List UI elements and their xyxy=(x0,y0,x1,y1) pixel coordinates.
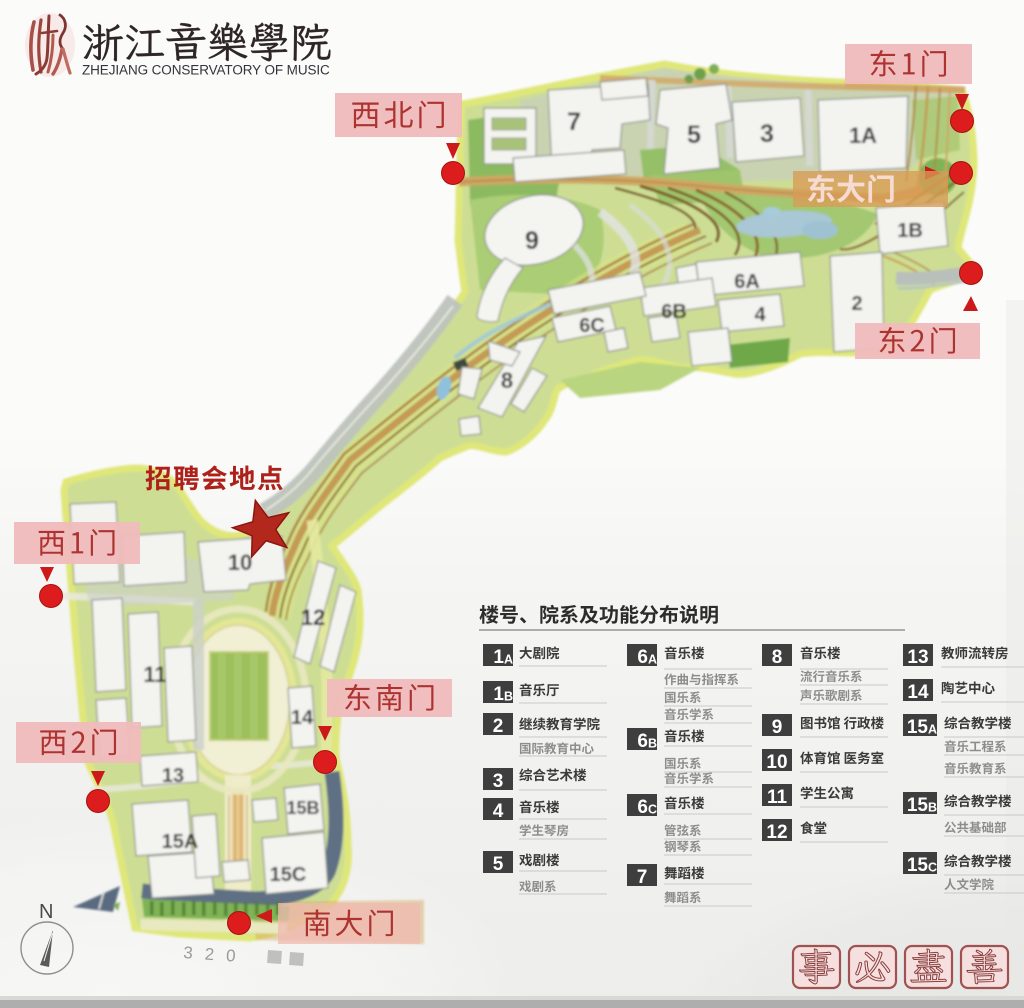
svg-text:A: A xyxy=(648,653,657,667)
svg-text:C: C xyxy=(648,803,657,817)
svg-text:B: B xyxy=(648,737,657,751)
svg-text:B: B xyxy=(504,690,513,704)
svg-text:3: 3 xyxy=(760,120,774,148)
svg-text:ZHEJIANG CONSERVATORY OF MUSIC: ZHEJIANG CONSERVATORY OF MUSIC xyxy=(82,63,330,78)
svg-text:15: 15 xyxy=(907,855,929,876)
svg-text:15A: 15A xyxy=(162,831,199,853)
svg-text:1A: 1A xyxy=(849,123,877,148)
svg-text:8: 8 xyxy=(772,647,783,668)
svg-text:1: 1 xyxy=(493,684,504,705)
svg-text:C: C xyxy=(928,861,937,875)
svg-text:15: 15 xyxy=(907,795,929,816)
svg-text:7: 7 xyxy=(637,867,648,888)
svg-text:15: 15 xyxy=(907,717,929,738)
svg-text:8: 8 xyxy=(501,368,513,393)
svg-text:6: 6 xyxy=(637,797,648,818)
svg-text:6C: 6C xyxy=(579,315,605,337)
svg-text:13: 13 xyxy=(907,647,928,668)
svg-text:7: 7 xyxy=(567,108,581,136)
svg-text:2: 2 xyxy=(493,716,504,737)
svg-text:6B: 6B xyxy=(661,301,687,323)
svg-text:14: 14 xyxy=(907,682,929,703)
svg-text:11: 11 xyxy=(767,787,788,808)
svg-text:1: 1 xyxy=(493,647,504,668)
svg-text:A: A xyxy=(928,723,937,737)
svg-text:5: 5 xyxy=(687,121,701,149)
svg-text:10: 10 xyxy=(228,550,252,575)
svg-text:6A: 6A xyxy=(734,271,760,293)
svg-text:9: 9 xyxy=(772,717,783,738)
svg-text:9: 9 xyxy=(525,227,539,255)
svg-text:2: 2 xyxy=(851,293,862,315)
svg-text:A: A xyxy=(504,653,513,667)
svg-text:N: N xyxy=(39,901,53,923)
svg-text:15C: 15C xyxy=(270,864,307,886)
svg-text:3: 3 xyxy=(493,771,504,792)
svg-text:6: 6 xyxy=(637,647,648,668)
svg-text:15B: 15B xyxy=(286,798,319,818)
svg-text:10: 10 xyxy=(766,752,787,773)
svg-text:12: 12 xyxy=(301,605,325,630)
svg-text:1B: 1B xyxy=(897,220,923,242)
svg-text:12: 12 xyxy=(766,822,787,843)
svg-text:11: 11 xyxy=(143,662,166,687)
svg-text:13: 13 xyxy=(162,765,184,787)
svg-text:5: 5 xyxy=(493,854,504,875)
svg-text:4: 4 xyxy=(754,304,766,326)
svg-text:6: 6 xyxy=(637,731,648,752)
svg-text:B: B xyxy=(928,801,937,815)
svg-text:4: 4 xyxy=(493,801,504,822)
svg-text:14: 14 xyxy=(291,707,314,729)
